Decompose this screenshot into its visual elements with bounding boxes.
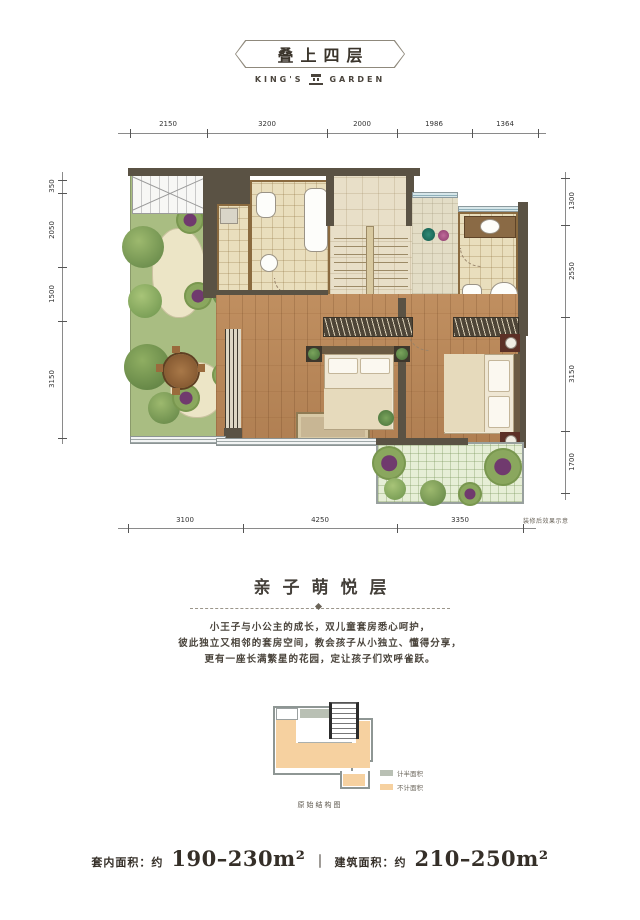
window bbox=[130, 436, 226, 444]
title-hexagon-frame: 叠上四层 bbox=[235, 40, 405, 68]
legend-swatch bbox=[380, 770, 393, 776]
area-divider: ｜ bbox=[313, 851, 326, 870]
dim-label: 1364 bbox=[496, 120, 514, 128]
tree-icon bbox=[128, 284, 162, 318]
inner-area-value: 190–230m² bbox=[171, 846, 305, 871]
legend-uncounted-area: 不计面积 bbox=[380, 782, 423, 792]
window bbox=[458, 206, 524, 212]
wall bbox=[128, 168, 420, 176]
toilet bbox=[256, 192, 276, 218]
floorplan-brochure-page: 叠上四层 KING'S GARDEN 2150 3200 2000 1986 1… bbox=[0, 0, 640, 920]
inset-closet bbox=[276, 708, 298, 720]
tree-icon bbox=[122, 226, 164, 268]
plant-icon bbox=[396, 348, 408, 360]
legend-label: 不计面积 bbox=[397, 782, 423, 792]
inset-stair-icon bbox=[329, 702, 359, 739]
dim-label: 3350 bbox=[451, 516, 469, 524]
pillow bbox=[488, 360, 510, 392]
bowl-decor bbox=[505, 337, 517, 349]
dim-label: 2050 bbox=[48, 210, 56, 250]
dim-label: 1986 bbox=[425, 120, 443, 128]
pillow bbox=[360, 358, 390, 374]
brand-right: GARDEN bbox=[329, 75, 385, 84]
plant-icon bbox=[378, 410, 394, 426]
garden-table bbox=[164, 354, 198, 388]
brand-line: KING'S GARDEN bbox=[0, 74, 640, 85]
area-summary: 套内面积：约 190–230m² ｜ 建筑面积：约 210–250m² bbox=[0, 846, 640, 871]
garden-chair bbox=[172, 388, 180, 395]
building-area-label: 建筑面积：约 bbox=[335, 854, 407, 870]
window bbox=[216, 438, 398, 446]
wall bbox=[326, 176, 334, 226]
blanket bbox=[444, 354, 485, 432]
half-area-fill bbox=[300, 709, 330, 718]
section-paragraph: 小王子与小公主的成长，双儿童套房悉心呵护， 彼此独立又相邻的套房空间，教会孩子从… bbox=[0, 620, 640, 668]
tree-icon bbox=[420, 480, 446, 506]
sink bbox=[480, 219, 500, 234]
tree-icon bbox=[384, 478, 406, 500]
floor-plan bbox=[128, 166, 528, 504]
flower-tree-icon bbox=[372, 446, 406, 480]
skylight bbox=[132, 174, 204, 214]
building-area-value: 210–250m² bbox=[415, 846, 549, 871]
hedge-fence bbox=[225, 329, 241, 437]
wall bbox=[518, 202, 528, 336]
dim-label: 1700 bbox=[568, 442, 576, 482]
uncounted-area-fill bbox=[276, 713, 296, 768]
uncounted-area-fill bbox=[343, 774, 365, 786]
sink bbox=[260, 254, 278, 272]
wall bbox=[376, 438, 468, 445]
pillow bbox=[488, 396, 510, 428]
legend-label: 计半面积 bbox=[397, 768, 423, 778]
page-title: 叠上四层 bbox=[235, 40, 405, 68]
render-note: 装修后效果示意 bbox=[523, 516, 569, 525]
inner-area-label: 套内面积：约 bbox=[91, 854, 163, 870]
dim-label: 4250 bbox=[311, 516, 329, 524]
dim-label: 350 bbox=[48, 166, 56, 206]
bathtub bbox=[304, 188, 328, 252]
dim-label: 3150 bbox=[48, 359, 56, 399]
wall bbox=[398, 352, 406, 444]
paragraph-line: 彼此独立又相邻的套房空间，教会孩子从小独立、懂得分享， bbox=[0, 636, 640, 652]
dim-label: 2000 bbox=[353, 120, 371, 128]
dim-label: 1500 bbox=[48, 274, 56, 314]
kings-garden-logo-icon bbox=[309, 74, 323, 85]
garden-chair bbox=[156, 364, 163, 372]
garden-chair bbox=[198, 364, 205, 372]
window bbox=[412, 192, 458, 198]
flower-tree-icon bbox=[458, 482, 482, 506]
plant-icon bbox=[422, 228, 435, 241]
paragraph-line: 小王子与小公主的成长，双儿童套房悉心呵护， bbox=[0, 620, 640, 636]
legend-swatch bbox=[380, 784, 393, 790]
flower-tree-icon bbox=[484, 448, 522, 486]
wall bbox=[203, 204, 217, 298]
wall bbox=[203, 170, 250, 206]
dim-label: 2150 bbox=[159, 120, 177, 128]
brand-left: KING'S bbox=[255, 75, 304, 84]
dim-label: 2550 bbox=[568, 251, 576, 291]
landing bbox=[412, 198, 458, 294]
plant-icon bbox=[308, 348, 320, 360]
paragraph-line: 更有一座长满繁星的花园，定让孩子们欢呼雀跃。 bbox=[0, 652, 640, 668]
section-title: 亲子萌悦层 bbox=[0, 573, 640, 598]
inset-caption: 原始结构图 bbox=[0, 800, 640, 810]
plant-icon bbox=[438, 230, 449, 241]
dim-label: 1300 bbox=[568, 181, 576, 221]
bed-headboard bbox=[322, 346, 394, 354]
pillow bbox=[328, 358, 358, 374]
garden-chair bbox=[172, 346, 180, 353]
tree-icon bbox=[124, 344, 170, 390]
dim-label: 3150 bbox=[568, 354, 576, 394]
dim-label: 3200 bbox=[258, 120, 276, 128]
wall bbox=[216, 290, 328, 295]
legend-half-area: 计半面积 bbox=[380, 768, 423, 778]
closet bbox=[220, 208, 238, 224]
wardrobe bbox=[324, 318, 412, 336]
dim-label: 3100 bbox=[176, 516, 194, 524]
